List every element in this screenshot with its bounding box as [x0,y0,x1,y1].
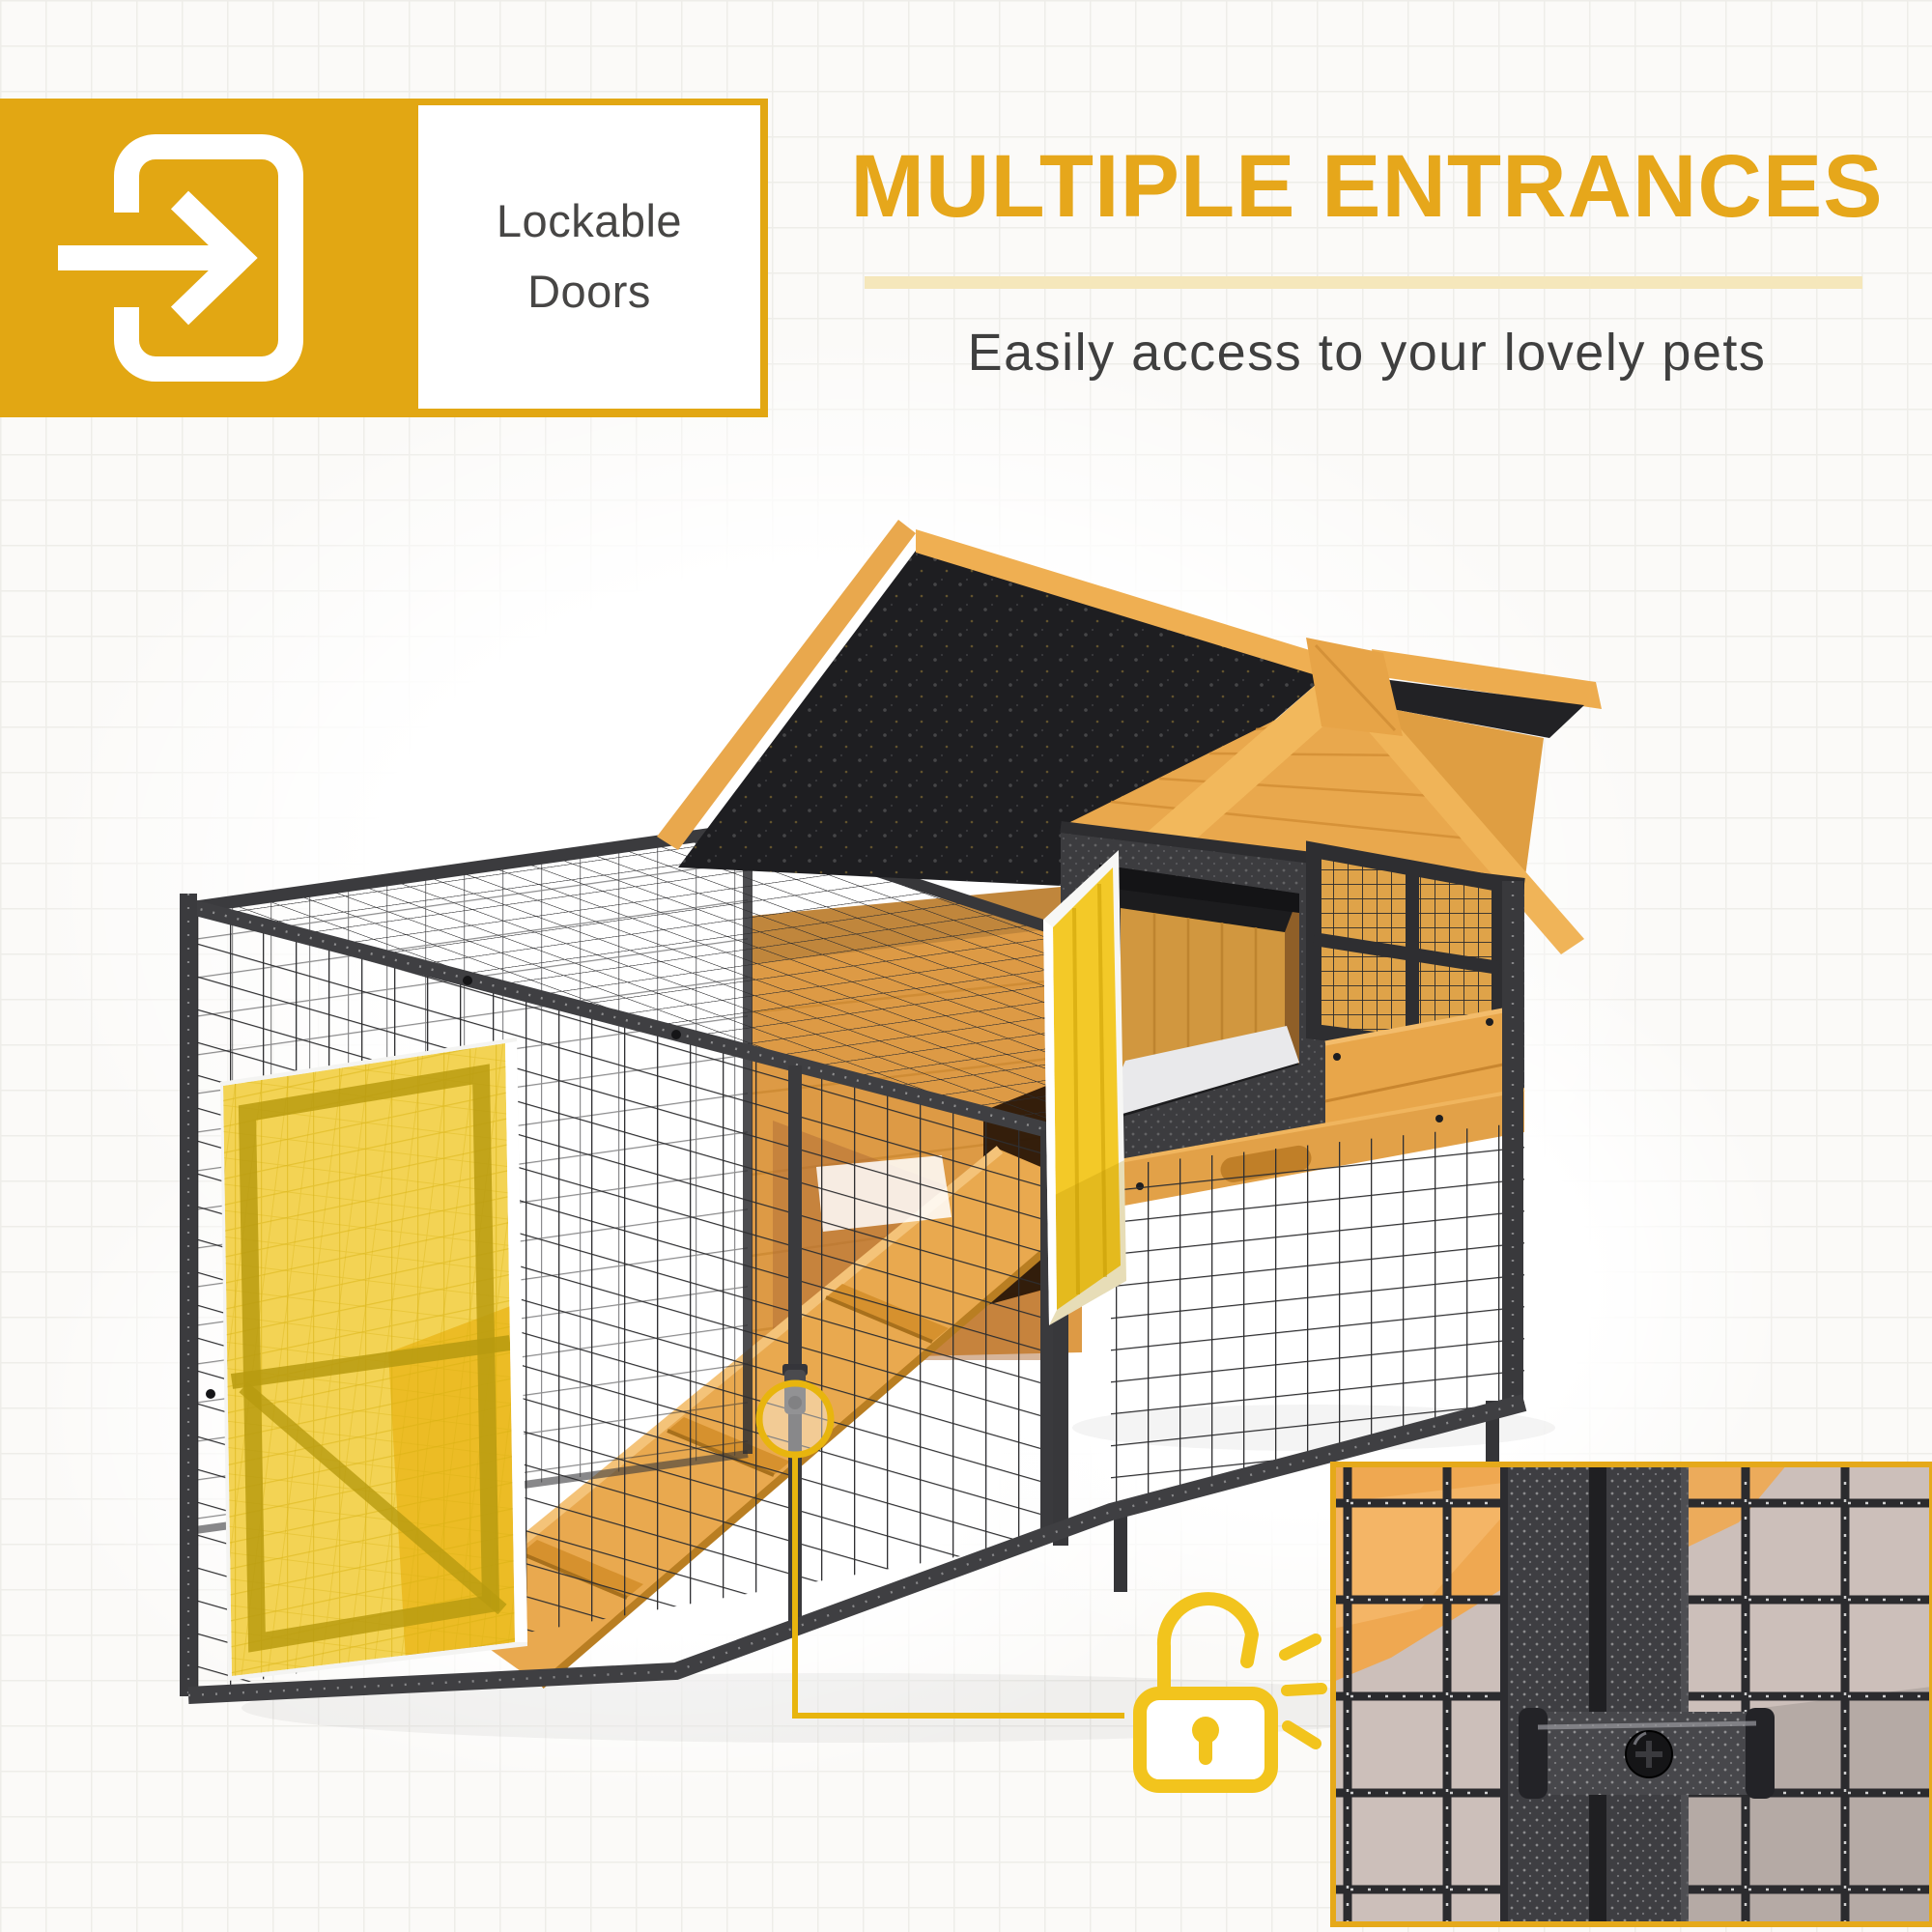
house-door-highlight [1043,850,1126,1325]
marketing-page: Lockable Doors MULTIPLE ENTRANCES Easily… [0,0,1932,1932]
badge-label: Lockable Doors [449,186,729,327]
inset-frame-posts [1500,1464,1689,1924]
door-enter-icon [0,99,418,417]
subheadline: Easily access to your lovely pets [802,323,1932,383]
feature-badge: Lockable Doors [0,99,768,417]
detail-inset [1333,1464,1932,1924]
badge-label-box: Lockable Doors [418,105,760,409]
inset-lock-clamp [1519,1708,1775,1799]
headline-underline-bar [865,276,1862,289]
padlock-icon [1140,1599,1321,1786]
headline: MULTIPLE ENTRANCES [802,136,1932,238]
